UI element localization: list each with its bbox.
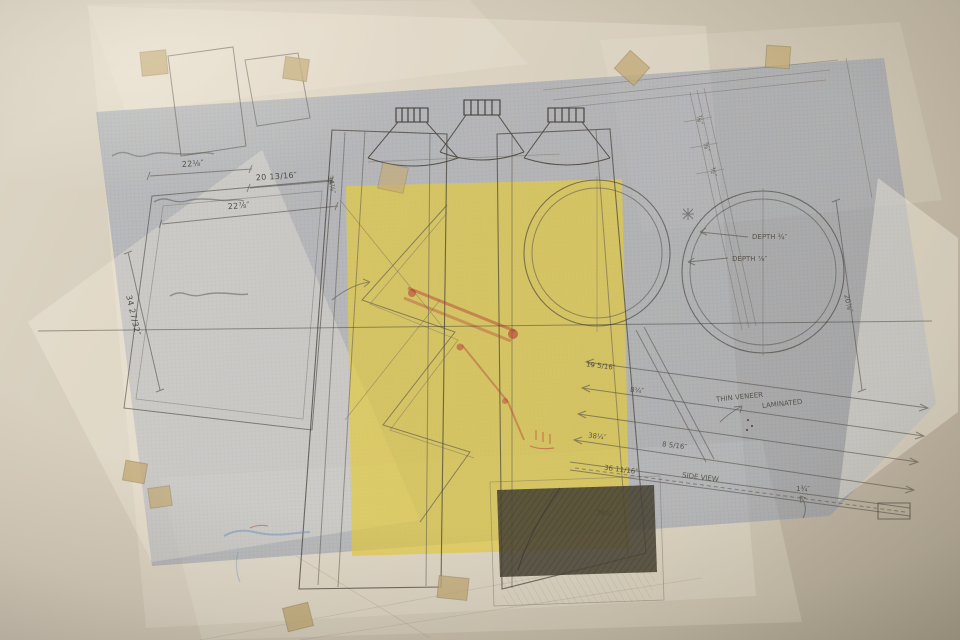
red-joint-blob — [457, 344, 464, 351]
dim-label: 22⅛″ — [182, 158, 205, 169]
depth-label: DEPTH ⅞″ — [732, 255, 768, 263]
drawing-canvas: 22⅛″ 20 13/16″ 22⅞″ 34 27/32″ 34⅞″ ⅞″ ⅝″… — [0, 0, 960, 640]
asterisk-mark — [682, 208, 694, 220]
red-joint-blob — [508, 329, 518, 339]
depth-label: DEPTH ¾″ — [752, 233, 788, 241]
dim-label: 22⅞″ — [227, 200, 250, 211]
photo-layered-tracing-drawings: 22⅛″ 20 13/16″ 22⅞″ 34 27/32″ 34⅞″ ⅞″ ⅝″… — [0, 0, 960, 640]
hatched-panel — [490, 476, 664, 606]
dim-label: 1¾″ — [796, 485, 810, 493]
masking-tape — [148, 486, 173, 509]
pencil-dot — [751, 425, 753, 427]
dim-label: ½″ — [709, 167, 719, 178]
red-joint-blob — [408, 289, 416, 297]
dark-hatch-texture — [497, 485, 657, 577]
masking-tape — [140, 50, 168, 77]
light-hatched-area — [500, 572, 657, 605]
masking-tape — [122, 460, 147, 484]
masking-tape — [765, 45, 790, 69]
dim-label: ⅝″ — [702, 142, 712, 153]
pencil-dot — [747, 419, 749, 421]
masking-tape — [378, 163, 409, 194]
pencil-dot — [746, 429, 748, 431]
red-joint-blob — [502, 398, 508, 404]
masking-tape — [283, 56, 310, 81]
masking-tape — [437, 575, 469, 600]
dim-label: ⅞″ — [695, 115, 705, 126]
